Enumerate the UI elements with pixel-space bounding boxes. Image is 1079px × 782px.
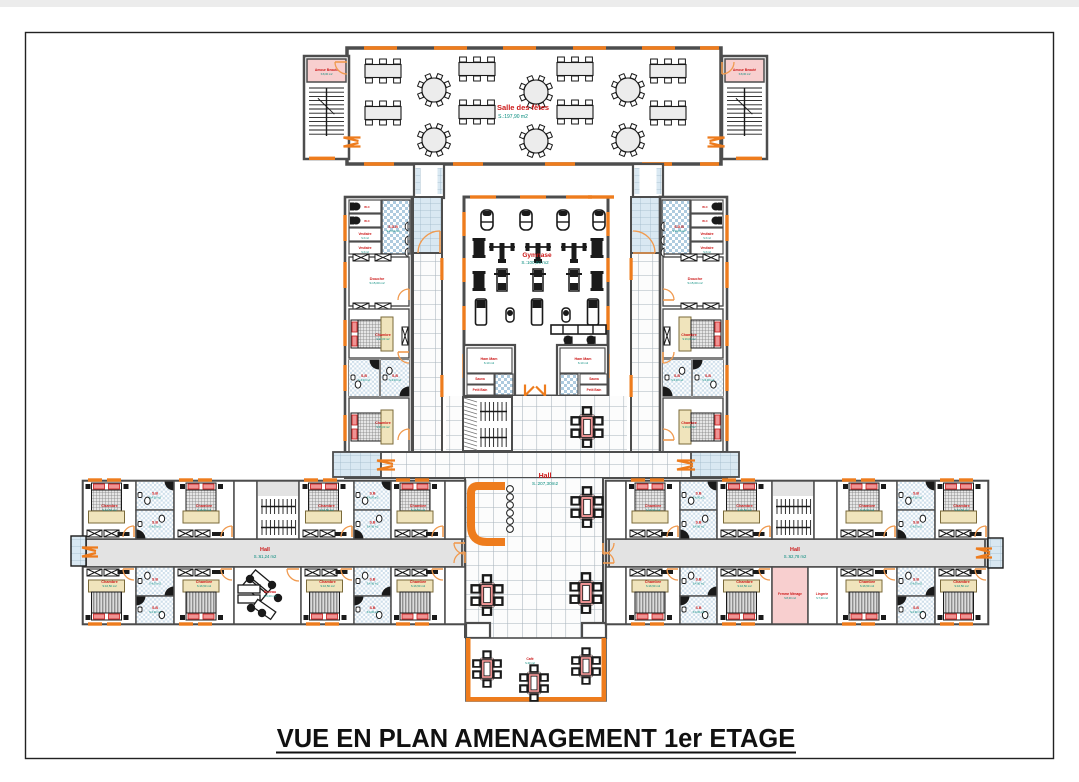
svg-text:Hall: Hall [790,547,800,553]
svg-text:S:40 m2: S:40 m2 [525,661,535,665]
svg-text:S:4,00 m2: S:4,00 m2 [367,610,379,614]
svg-text:S:4,00 m2: S:4,00 m2 [149,496,161,500]
svg-text:S:4,00 m2: S:4,00 m2 [910,496,922,500]
svg-text:S:4,00 m2: S:4,00 m2 [149,525,161,529]
svg-text:S.B: S.B [913,606,919,610]
svg-text:Vestiaire: Vestiaire [700,232,713,236]
svg-text:Femme Ménage: Femme Ménage [778,592,802,596]
svg-text:S:16,50 m2: S:16,50 m2 [411,584,426,588]
svg-text:Amour Beauté: Amour Beauté [315,68,338,72]
svg-text:S.B: S.B [696,606,702,610]
svg-text:S:16,50 m2: S:16,50 m2 [197,584,212,588]
svg-text:S.B: S.B [361,374,367,378]
svg-text:S:3 m2: S:3 m2 [361,237,369,240]
svg-text:S:4,00 m2: S:4,00 m2 [910,525,922,529]
svg-text:S.B: S.B [913,578,919,582]
svg-text:Salle des fêtes: Salle des fêtes [497,103,549,112]
svg-text:S:16,00 m2: S:16,00 m2 [376,337,390,341]
svg-text:Hall: Hall [539,473,552,480]
svg-text:S:16,50 m2: S:16,50 m2 [737,584,752,588]
svg-text:S:4,00 m2: S:4,00 m2 [149,582,161,586]
svg-text:Vestiaire: Vestiaire [700,246,713,250]
svg-text:S:8,00 m2: S:8,00 m2 [739,72,751,76]
svg-text:S:4,00 m2: S:4,00 m2 [693,610,705,614]
svg-text:S:16,50 m2: S:16,50 m2 [860,584,875,588]
svg-text:S.B: S.B [696,578,702,582]
svg-text:S.:62,78 m2: S.:62,78 m2 [784,554,807,559]
svg-text:S:8,00 m2: S:8,00 m2 [784,596,796,600]
svg-text:Petit Bain: Petit Bain [473,388,488,392]
svg-text:S:9,00 m2: S:9,00 m2 [264,594,277,598]
svg-text:S.B: S.B [392,374,398,378]
svg-text:S.B: S.B [370,578,376,582]
svg-text:S.B: S.B [913,521,919,525]
svg-text:S:4,00 m2: S:4,00 m2 [693,525,705,529]
svg-text:S:10 m2: S:10 m2 [578,361,589,365]
svg-text:S:4,00 m2: S:4,00 m2 [367,525,379,529]
svg-text:Chambre: Chambre [681,421,697,425]
svg-text:S.:100,00 m2: S.:100,00 m2 [521,260,549,265]
svg-text:S.D.B: S.D.B [388,225,398,229]
svg-text:W.C: W.C [702,205,708,209]
svg-text:S:16,00 m2: S:16,00 m2 [682,425,696,429]
svg-text:S:16,50 m2: S:16,50 m2 [102,584,117,588]
svg-text:S:16,00 m2: S:16,00 m2 [682,337,696,341]
svg-text:S.D.B: S.D.B [674,225,684,229]
svg-text:Chambre: Chambre [375,333,391,337]
svg-text:S:16,50 m2: S:16,50 m2 [646,508,661,512]
svg-text:S.B: S.B [913,492,919,496]
svg-text:W.C: W.C [702,219,708,223]
svg-text:S.B: S.B [674,374,680,378]
svg-text:Vestiaire: Vestiaire [358,232,371,236]
svg-text:S.:197,90 m2: S.:197,90 m2 [498,114,528,120]
svg-text:S.B: S.B [370,492,376,496]
svg-text:S:4,00 m2: S:4,00 m2 [149,610,161,614]
svg-text:S:4,00 m2: S:4,00 m2 [367,496,379,500]
svg-text:Sauna: Sauna [475,377,485,381]
svg-text:S:8,00 m2: S:8,00 m2 [321,72,333,76]
svg-text:S.B: S.B [152,521,158,525]
svg-text:S:4,00 m2: S:4,00 m2 [358,378,370,382]
svg-text:W.C: W.C [364,205,370,209]
svg-text:S:10 m2: S:10 m2 [484,361,495,365]
svg-text:S.B: S.B [696,521,702,525]
svg-text:S:16,00 m2: S:16,00 m2 [386,229,400,233]
svg-text:S:16,50 m2: S:16,50 m2 [954,584,969,588]
svg-text:S.B: S.B [370,606,376,610]
svg-text:S:16,50 m2: S:16,50 m2 [737,508,752,512]
svg-text:S:16,50 m2: S:16,50 m2 [102,508,117,512]
svg-text:S:4,00 m2: S:4,00 m2 [910,610,922,614]
svg-text:S:7,00 m2: S:7,00 m2 [816,596,828,600]
svg-text:S:4,00 m2: S:4,00 m2 [367,582,379,586]
svg-text:Chambre: Chambre [375,421,391,425]
svg-text:S:16,50 m2: S:16,50 m2 [319,508,334,512]
svg-text:S:4,00 m2: S:4,00 m2 [910,582,922,586]
svg-text:Vestiaire: Vestiaire [358,246,371,250]
svg-text:S.B: S.B [152,578,158,582]
svg-text:Petit Bain: Petit Bain [587,388,602,392]
svg-text:Hall: Hall [260,547,270,553]
svg-text:Chambre: Chambre [681,333,697,337]
svg-text:S.B: S.B [370,521,376,525]
svg-text:Sauna: Sauna [589,377,599,381]
svg-text:VUE EN PLAN AMENAGEMENT 1er ET: VUE EN PLAN AMENAGEMENT 1er ETAGE [277,725,796,753]
svg-text:W.C: W.C [364,219,370,223]
svg-text:S:16,50 m2: S:16,50 m2 [646,584,661,588]
svg-text:Gymnase: Gymnase [522,252,552,259]
svg-text:S.B: S.B [696,492,702,496]
svg-text:Lingerie: Lingerie [816,592,829,596]
svg-text:S:3 m2: S:3 m2 [703,237,711,240]
svg-text:S:4,00 m2: S:4,00 m2 [389,378,401,382]
svg-text:S.:207,30m2: S.:207,30m2 [532,481,558,486]
svg-text:S:4,00 m2: S:4,00 m2 [671,378,683,382]
svg-text:Amour Beauté: Amour Beauté [733,68,756,72]
svg-text:S:16,50 m2: S:16,50 m2 [320,584,335,588]
svg-text:S:15,00 m2: S:15,00 m2 [687,281,703,285]
svg-text:S.B: S.B [152,606,158,610]
svg-text:S:15,00 m2: S:15,00 m2 [369,281,385,285]
svg-text:S:16,50 m2: S:16,50 m2 [197,508,212,512]
svg-text:S:16,50 m2: S:16,50 m2 [954,508,969,512]
svg-text:S.B: S.B [705,374,711,378]
svg-text:S:4,00 m2: S:4,00 m2 [693,496,705,500]
svg-text:S.:61,24 m2: S.:61,24 m2 [254,554,277,559]
svg-text:S:16,50 m2: S:16,50 m2 [411,508,426,512]
svg-text:S.B: S.B [152,492,158,496]
svg-text:S:16,50 m2: S:16,50 m2 [860,508,875,512]
svg-text:S:4,00 m2: S:4,00 m2 [702,378,714,382]
svg-text:S:16,00 m2: S:16,00 m2 [672,229,686,233]
svg-text:S:16,00 m2: S:16,00 m2 [376,425,390,429]
svg-text:S:4,00 m2: S:4,00 m2 [693,582,705,586]
svg-text:Café: Café [526,657,533,661]
